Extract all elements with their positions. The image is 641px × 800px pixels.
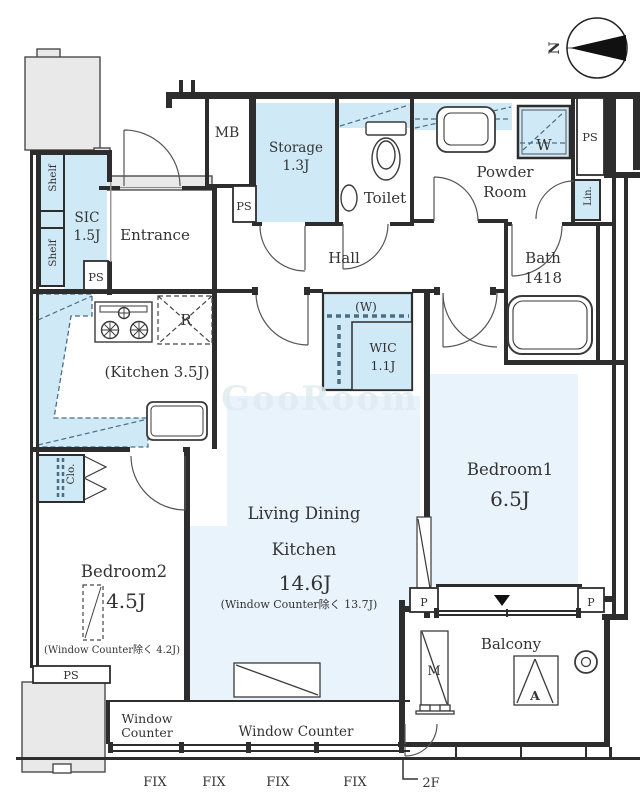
toilet-label: Toilet [364, 189, 406, 207]
refrigerator-label: R [180, 311, 192, 329]
sic-label: SIC [75, 210, 100, 226]
neighbor-notch [53, 764, 71, 773]
pipe-right-label: P [587, 596, 595, 609]
storage-door [260, 226, 305, 271]
kitchen-label: (Kitchen 3.5J) [105, 363, 210, 381]
entrance-label: Entrance [120, 226, 190, 244]
linen-door [536, 181, 574, 219]
hall-label: Hall [328, 249, 360, 267]
compass: N [547, 18, 627, 78]
balcony-label: Balcony [481, 635, 542, 653]
ps-sic-label: PS [88, 270, 104, 284]
wic-size: 1.1J [371, 358, 396, 373]
fix-label-4: FIX [343, 775, 367, 790]
bedroom2-size: 4.5J [106, 589, 146, 613]
powder-room-label2: Room [483, 183, 527, 201]
closet-box [38, 455, 84, 502]
bifold-door-upper [84, 456, 106, 478]
window-counter-main: Window Counter [239, 724, 355, 740]
floor-plan-svg: GooRoom N MB Storage 1.3J PS Toilet Powd… [0, 0, 641, 800]
stove [95, 302, 152, 342]
bedroom2-label: Bedroom2 [81, 562, 167, 581]
ldk-label1: Living Dining [248, 504, 361, 523]
fix-label-2: FIX [202, 775, 226, 790]
meter-label: M [427, 664, 440, 679]
washbasin [437, 107, 495, 152]
wic-door [443, 293, 497, 347]
storage-size: 1.3J [283, 158, 310, 174]
floor-level-bracket [403, 760, 418, 779]
ldk-counter-furniture [234, 663, 320, 697]
bath-size: 1418 [524, 269, 562, 287]
ps-right-label: PS [582, 130, 598, 144]
bedroom1-door [443, 293, 497, 347]
powder-room-label1: Powder [476, 163, 534, 181]
ldk-size: 14.6J [279, 571, 332, 595]
ps-storage-label: PS [236, 199, 252, 213]
kitchen-sink [147, 402, 207, 440]
bedroom2-door [131, 456, 185, 510]
window-counter-small1: Window [122, 711, 173, 726]
pocket-door [417, 517, 431, 590]
fix-label-1: FIX [143, 775, 167, 790]
washer-label: W [536, 136, 552, 154]
wic-label: WIC [369, 340, 396, 355]
mb-label: MB [215, 125, 240, 141]
floor-label: 2F [422, 776, 439, 791]
pipe-left-label: P [420, 596, 428, 609]
ps-bedroom2-label: PS [63, 668, 79, 682]
watermark: GooRoom [221, 379, 419, 419]
bathtub [508, 296, 592, 354]
wic-washer-label: (W) [355, 300, 377, 314]
shelf-middle-box [40, 211, 64, 228]
fix-label-3: FIX [266, 775, 290, 790]
bedroom2-note: (Window Counter除く 4.2J) [44, 643, 180, 656]
bedroom1-label: Bedroom1 [467, 460, 553, 479]
neighbor-block-top [25, 57, 100, 150]
window-counter-small2: Counter [121, 725, 173, 740]
sic-size: 1.5J [74, 228, 101, 244]
linen-label: Lin. [583, 186, 594, 205]
shelf-upper-label: Shelf [47, 163, 59, 192]
bifold-door-lower [84, 478, 106, 500]
ldk-note: (Window Counter除く 13.7J) [221, 597, 378, 611]
bedroom2-pillar [83, 585, 103, 640]
aircon-label: A [529, 688, 540, 703]
ldk-label2: Kitchen [272, 540, 337, 559]
bedroom1-floor [430, 374, 578, 586]
bath-label: Bath [525, 249, 561, 267]
balcony-access-marker [494, 595, 510, 606]
balcony-drain-icon [575, 651, 597, 673]
shelf-lower-label: Shelf [47, 238, 59, 267]
floor-plan: GooRoom N MB Storage 1.3J PS Toilet Powd… [0, 0, 641, 800]
powder-room-door [434, 177, 478, 221]
bedroom1-size: 6.5J [490, 487, 530, 511]
ldk-door [256, 293, 308, 345]
storage-label: Storage [269, 140, 323, 156]
compass-north-label: N [547, 41, 563, 54]
closet-label: Clo. [65, 464, 77, 485]
